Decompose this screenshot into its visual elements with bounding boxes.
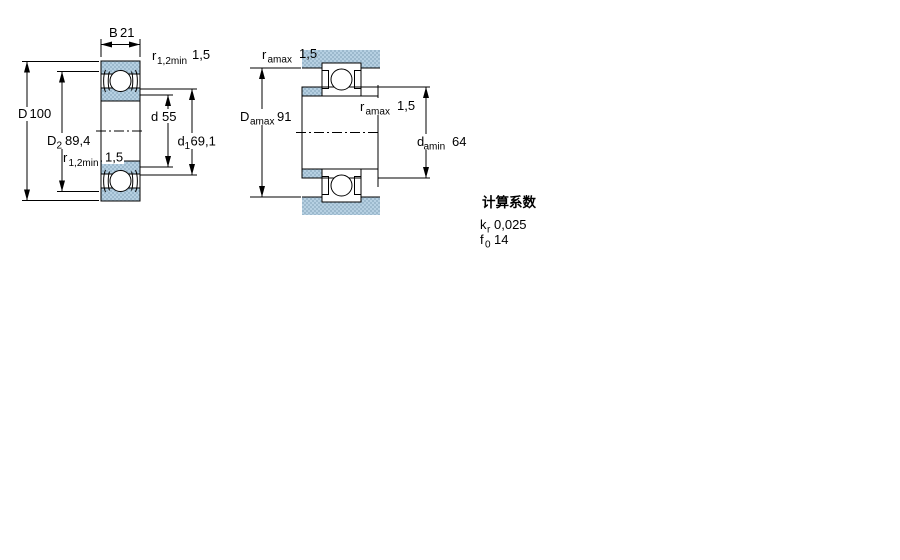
dim-r12-bottom-value: 1,5	[105, 150, 123, 165]
right-mounting-view	[296, 50, 430, 215]
dim-b-symbol: B	[109, 25, 118, 40]
dim-ra-top-subscript: amax	[268, 55, 292, 66]
dim-b-value: 21	[120, 25, 134, 40]
dim-r12-bottom-symbol: r	[63, 150, 68, 165]
dim-ra-mid-value: 1,5	[397, 98, 415, 113]
dim-ra-mid-subscript: amax	[366, 107, 390, 118]
bearing-drawing-page: B 21 D 100 D 2 89,4 r 1,2min 1,5 d 55 d …	[0, 0, 900, 560]
dim-r12-top-subscript: 1,2min	[157, 56, 187, 67]
dim-damin-value: 64	[452, 134, 466, 149]
dim-d-outer-value: 100	[30, 106, 52, 121]
dim-bore-symbol: d	[151, 109, 158, 124]
ball-top	[110, 71, 131, 92]
dim-d1-value: 69,1	[191, 134, 216, 149]
factor-kr-value: 0,025	[494, 217, 527, 232]
dim-ra-top-value: 1,5	[299, 46, 317, 61]
factor-kr-symbol: k	[480, 217, 487, 232]
dim-d2-subscript: 2	[57, 141, 63, 152]
dim-d2-value: 89,4	[65, 133, 90, 148]
dim-ra-mid-symbol: r	[360, 99, 365, 114]
shaft-shoulder-top	[302, 87, 322, 96]
dim-r12-top-value: 1,5	[192, 47, 210, 62]
ball-bottom-right-view	[331, 175, 352, 196]
left-bearing-cross-section	[96, 61, 145, 201]
factor-kr-subscript: r	[487, 225, 491, 236]
ball-bottom	[110, 171, 131, 192]
dim-damax-symbol: D	[240, 109, 249, 124]
factor-f0-subscript: 0	[485, 240, 491, 251]
factor-f0-value: 14	[494, 232, 508, 247]
ball-top-right-view	[331, 69, 352, 90]
bearing-dimension-drawing: B 21 D 100 D 2 89,4 r 1,2min 1,5 d 55 d …	[0, 0, 900, 560]
dim-bore-value: 55	[162, 109, 176, 124]
factor-f0-symbol: f	[480, 232, 484, 247]
dim-d-outer-symbol: D	[18, 106, 27, 121]
dim-damin-subscript: amin	[424, 142, 446, 153]
dim-damax-subscript: amax	[250, 117, 274, 128]
dim-damax-value: 91	[277, 109, 291, 124]
dim-ra-top-symbol: r	[262, 47, 267, 62]
calc-factors-title: 计算系数	[482, 194, 536, 210]
dim-r12-bottom-subscript: 1,2min	[69, 158, 99, 169]
calc-factors-block: 计算系数 k r 0,025 f 0 14	[480, 194, 536, 251]
shaft-shoulder-bottom	[302, 169, 322, 178]
dim-d2-symbol: D	[47, 133, 56, 148]
